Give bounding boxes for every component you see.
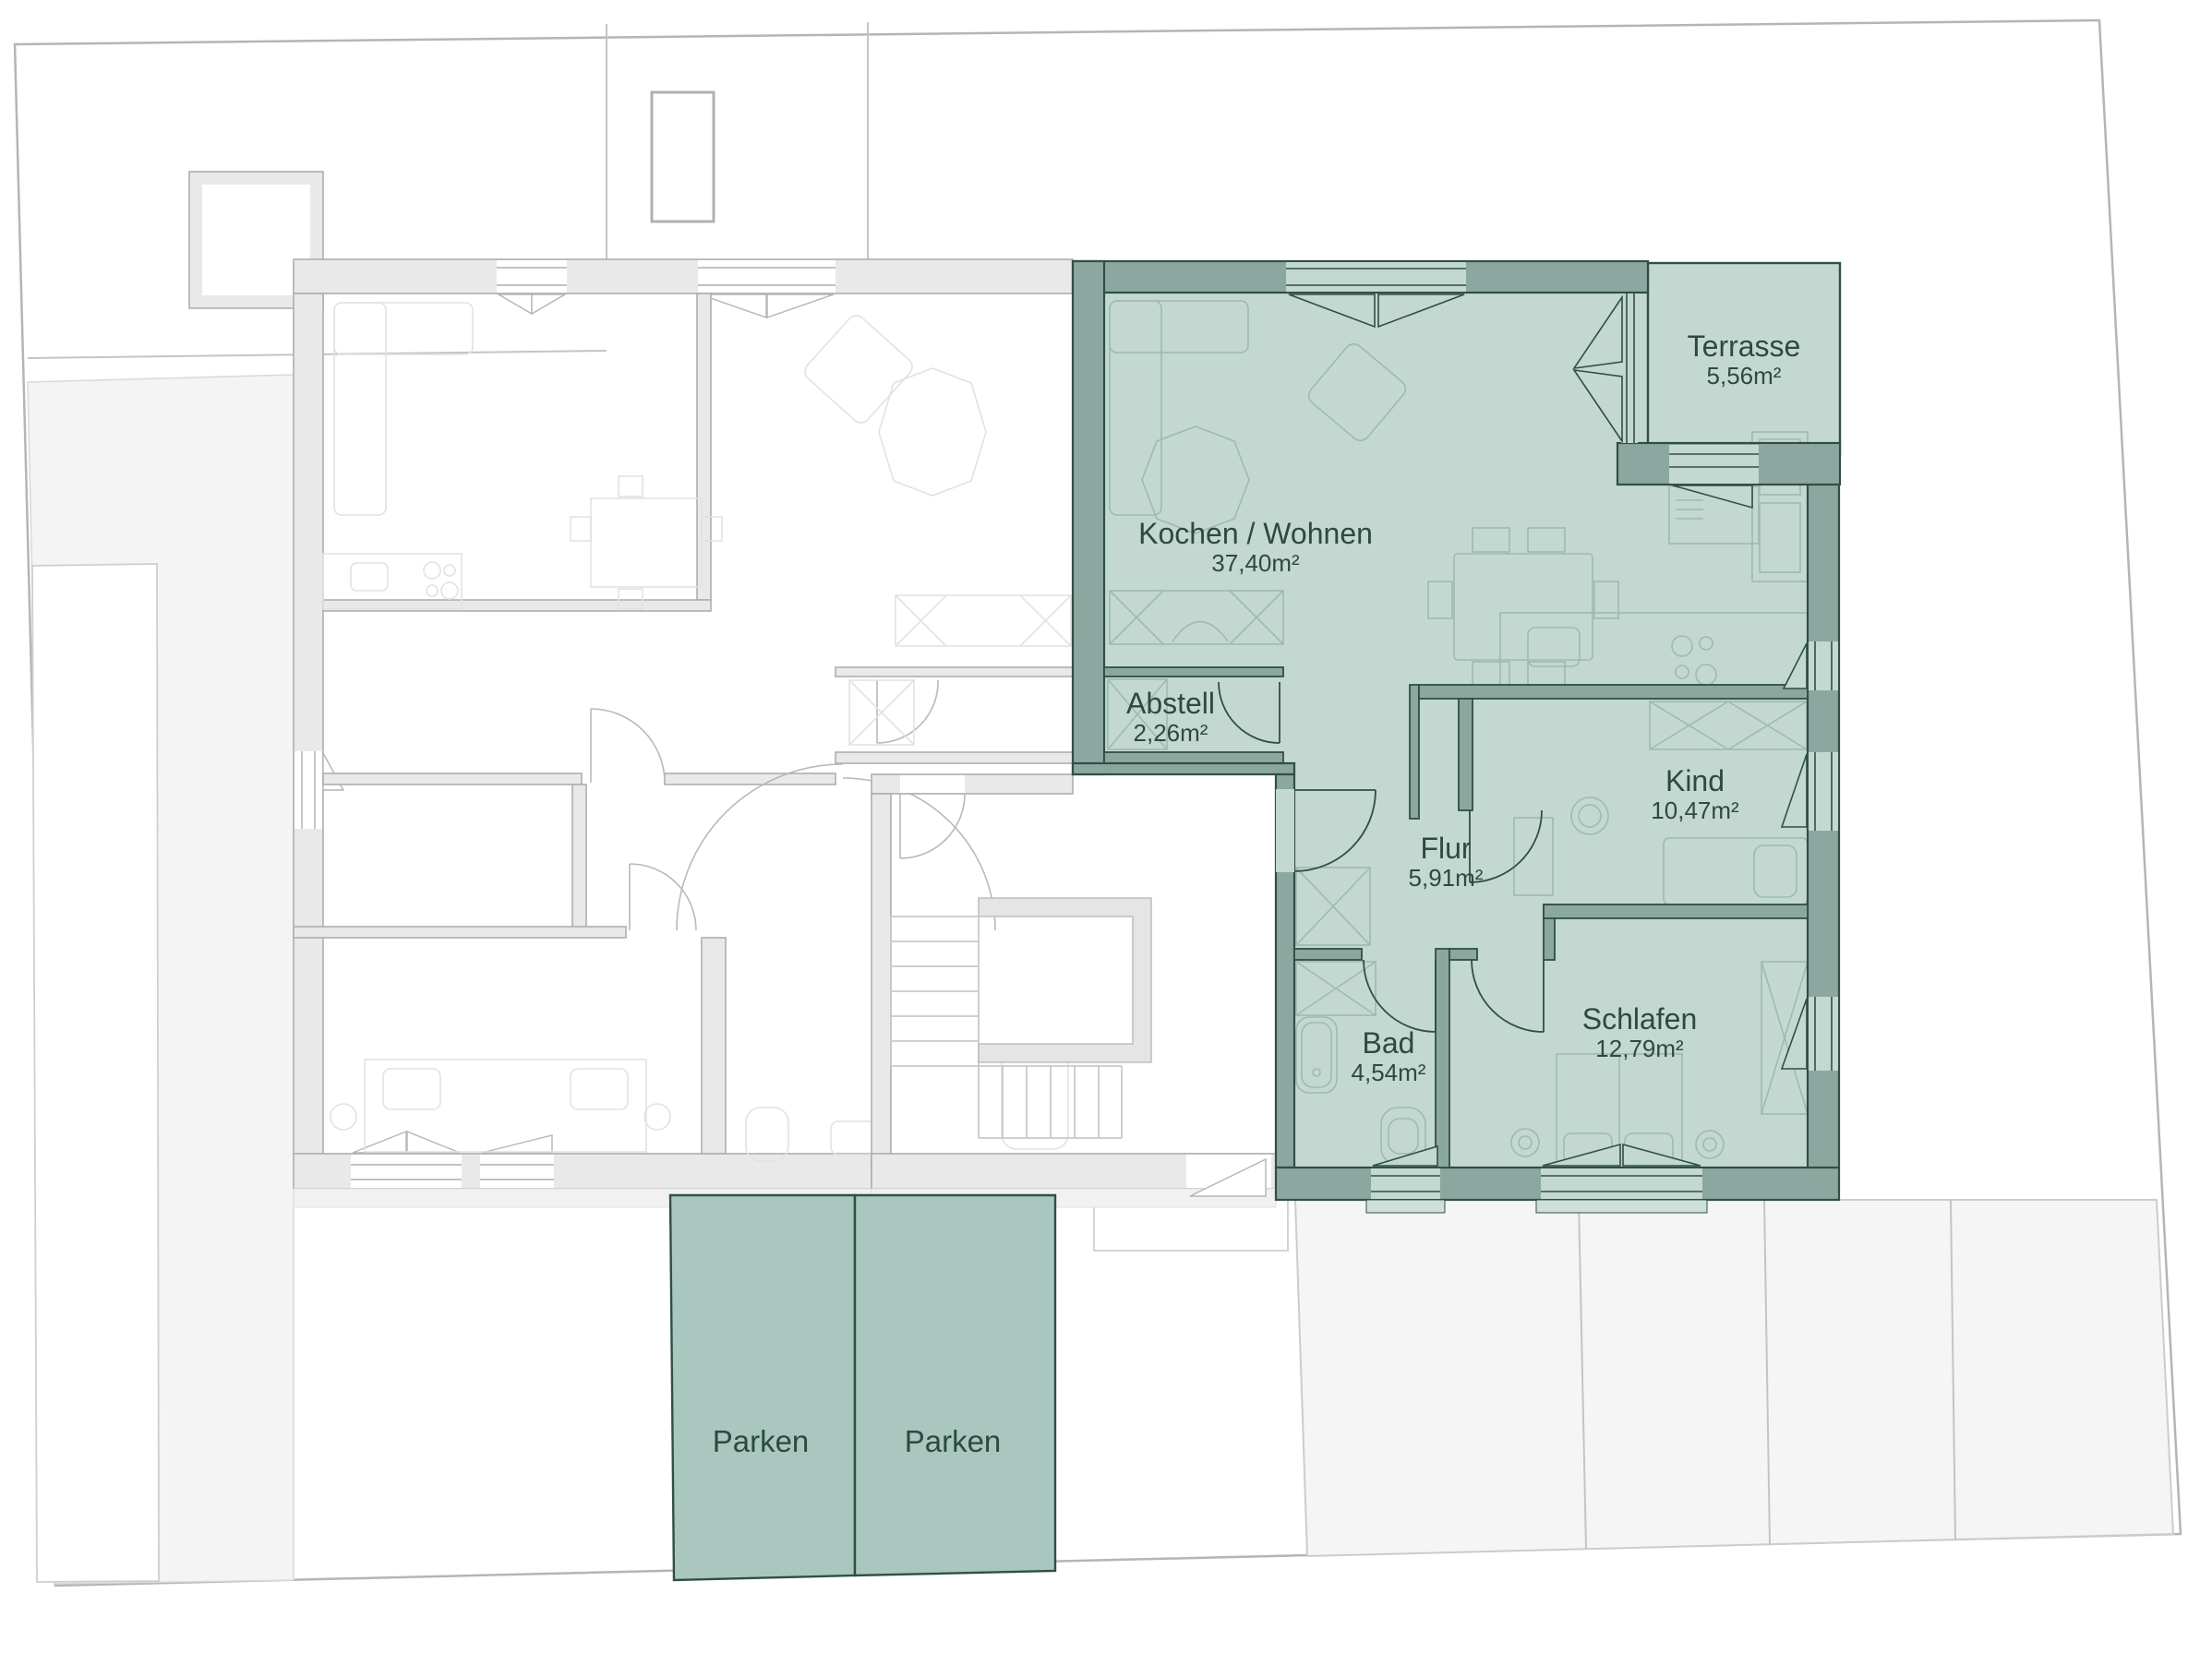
left-apartment [189, 172, 1073, 1207]
room-label-terrasse: Terrasse 5,56m² [1688, 330, 1801, 389]
parking-label-1: Parken [713, 1425, 810, 1458]
parking-label-2: Parken [905, 1425, 1002, 1458]
parking-spaces [670, 1195, 1055, 1580]
floor-plan: Kochen / Wohnen 37,40m² Abstell 2,26m² T… [0, 0, 2212, 1653]
room-label-abstell: Abstell 2,26m² [1126, 688, 1215, 747]
room-label-kochen-wohnen: Kochen / Wohnen 37,40m² [1138, 518, 1373, 577]
room-label-kind: Kind 10,47m² [1651, 765, 1738, 824]
room-label-bad: Bad 4,54m² [1352, 1027, 1426, 1086]
stairs [891, 916, 1122, 1138]
stairwell [872, 774, 1276, 1207]
room-label-schlafen: Schlafen 12,79m² [1582, 1003, 1698, 1062]
floor-plan-drawing [0, 0, 2212, 1653]
parking-stalls-gray [1295, 1200, 2173, 1556]
parking-space-2 [855, 1195, 1055, 1575]
room-label-flur: Flur 5,91m² [1409, 832, 1484, 892]
site-lawn-left [32, 564, 159, 1582]
chimney [652, 92, 714, 222]
site [15, 20, 2181, 1586]
parking-space-1 [670, 1195, 855, 1580]
stair-landing-wall [979, 898, 1151, 1062]
